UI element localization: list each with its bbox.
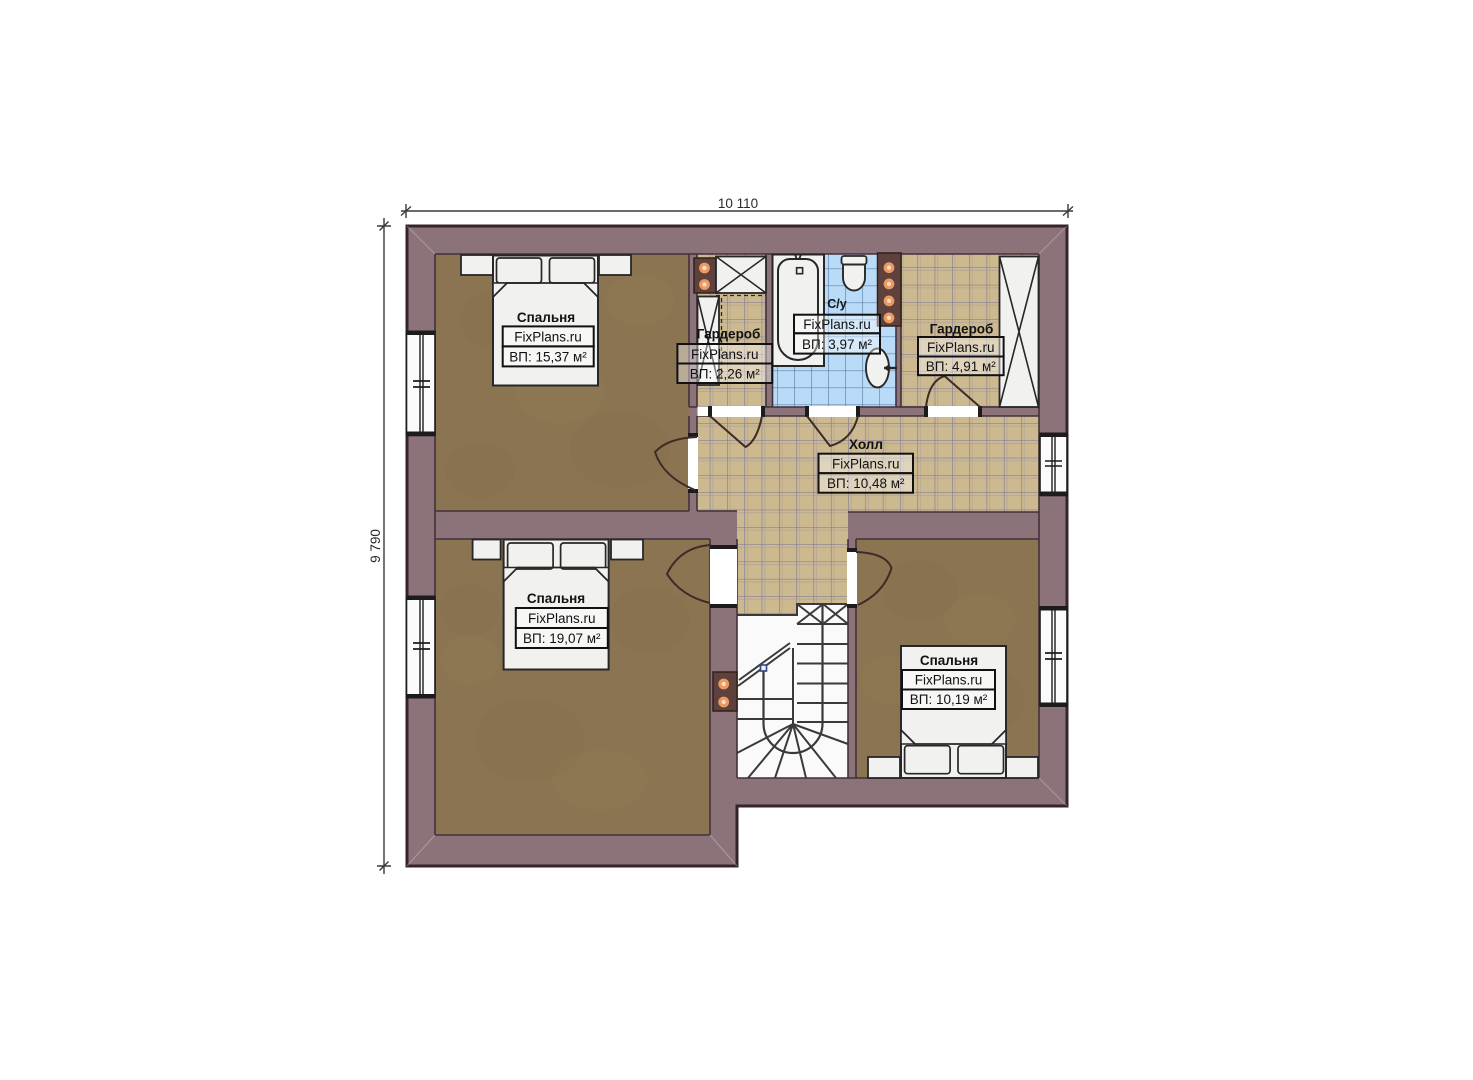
svg-text:Гардероб: Гардероб — [697, 327, 761, 342]
svg-text:Спальня: Спальня — [920, 653, 978, 668]
svg-text:FixPlans.ru: FixPlans.ru — [528, 611, 596, 626]
svg-text:FixPlans.ru: FixPlans.ru — [915, 673, 983, 688]
svg-text:ВП: 15,37 м²: ВП: 15,37 м² — [509, 350, 587, 365]
svg-text:ВП: 10,19 м²: ВП: 10,19 м² — [910, 692, 988, 707]
svg-text:ВП: 3,97 м²: ВП: 3,97 м² — [802, 337, 873, 352]
svg-text:10 110: 10 110 — [718, 196, 758, 211]
svg-text:FixPlans.ru: FixPlans.ru — [832, 457, 900, 472]
svg-text:Гардероб: Гардероб — [930, 322, 994, 337]
svg-text:9 790: 9 790 — [368, 529, 383, 563]
svg-text:Спальня: Спальня — [527, 591, 585, 606]
svg-text:FixPlans.ru: FixPlans.ru — [514, 330, 582, 345]
svg-text:FixPlans.ru: FixPlans.ru — [691, 347, 759, 362]
svg-text:Холл: Холл — [849, 437, 883, 452]
svg-text:ВП: 4,91 м²: ВП: 4,91 м² — [926, 359, 997, 374]
svg-text:ВП: 19,07 м²: ВП: 19,07 м² — [523, 631, 601, 646]
svg-text:FixPlans.ru: FixPlans.ru — [803, 317, 871, 332]
svg-text:ВП: 2,26 м²: ВП: 2,26 м² — [690, 366, 761, 381]
svg-text:ВП: 10,48 м²: ВП: 10,48 м² — [827, 476, 905, 491]
svg-text:FixPlans.ru: FixPlans.ru — [927, 340, 995, 355]
svg-text:С/у: С/у — [827, 297, 847, 311]
svg-text:Спальня: Спальня — [517, 310, 575, 325]
